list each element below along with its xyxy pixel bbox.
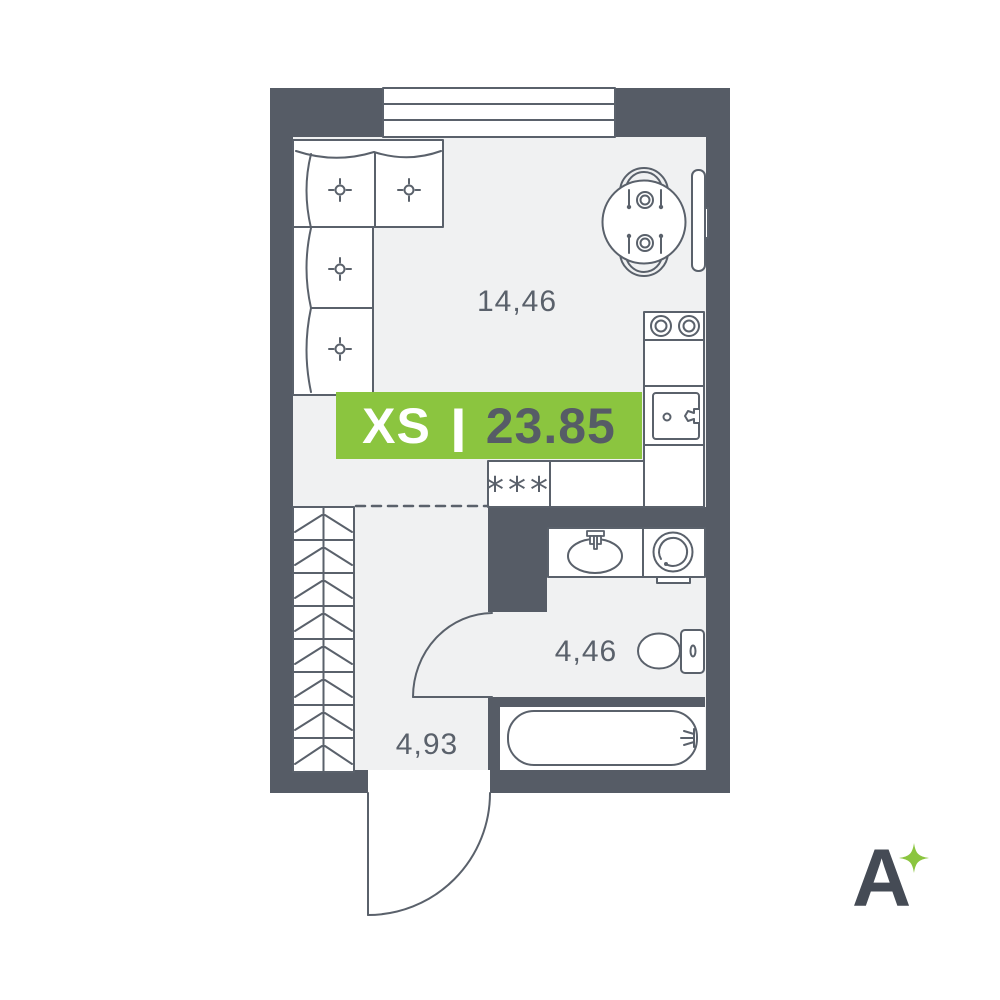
toilet-button-icon (691, 646, 696, 657)
wall-bottom-right (490, 770, 730, 793)
badge-area-value: 23.85 (486, 401, 616, 451)
window-top (383, 88, 615, 137)
room-label-hallway: 4,93 (396, 728, 458, 761)
brand-logo: A (852, 838, 942, 928)
badge-separator: | (449, 403, 467, 449)
wall-bottom-left (270, 770, 368, 793)
entrance-door (368, 793, 490, 915)
wall-left (270, 88, 293, 793)
wall-bathtub-divider (488, 697, 705, 707)
sparkle-icon (896, 840, 932, 876)
floor-plan: 14,46 4,46 4,93 *** (0, 0, 1000, 1000)
radiator-body (692, 170, 705, 271)
bathtub (508, 711, 697, 765)
entrance-opening (368, 770, 490, 793)
room-label-bathroom: 4,46 (555, 635, 617, 668)
washing-machine-dot (664, 562, 668, 566)
toilet-bowl (638, 634, 680, 669)
room-label-living: 14,46 (477, 285, 557, 318)
wardrobe (293, 507, 354, 772)
counter-cell (550, 461, 644, 507)
door-swing-arc (368, 793, 490, 915)
fridge-symbol: *** (486, 470, 552, 511)
radiator (692, 170, 708, 271)
wall-bathroom-left-lower (488, 697, 500, 770)
sofa-left-section (293, 227, 373, 395)
counter-cell (644, 445, 704, 507)
washing-machine-tray (657, 577, 690, 583)
wall-right (706, 88, 730, 793)
area-badge: XS | 23.85 (336, 392, 642, 459)
counter-cell (644, 340, 704, 386)
wall-bathroom-corner-block (488, 507, 547, 612)
washing-machine (643, 528, 705, 577)
badge-size-label: XS (362, 401, 431, 451)
